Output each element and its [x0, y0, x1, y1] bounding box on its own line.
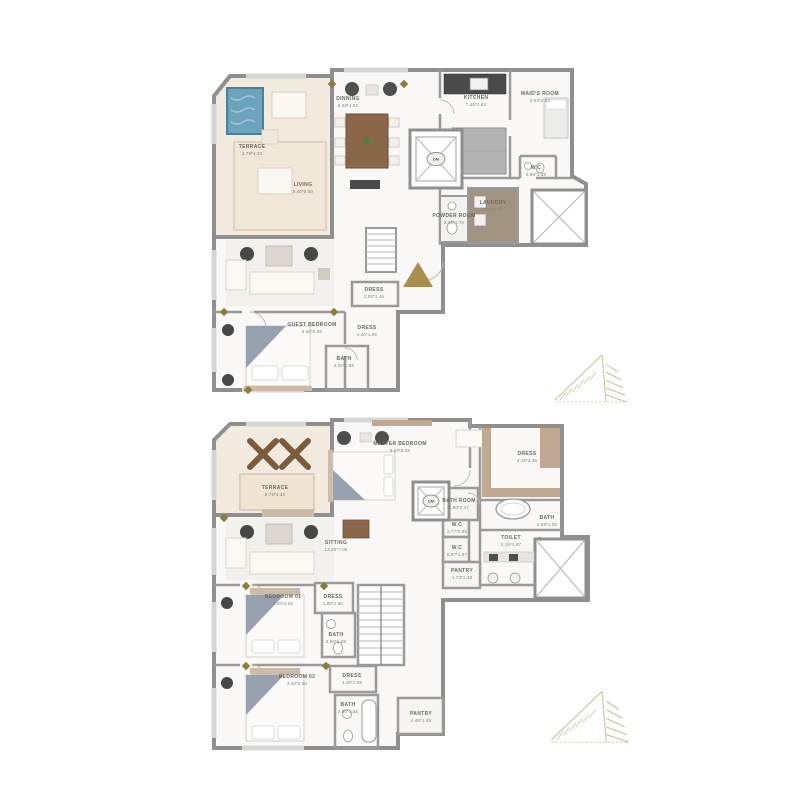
bathtub	[496, 499, 530, 519]
service-shaft	[535, 539, 586, 598]
floorplan-page: TERRACE3.79*4.33DINNING6.48*4.92KITCHEN7…	[0, 0, 800, 800]
elevator	[413, 482, 449, 520]
sitting-furniture	[226, 509, 334, 580]
stairs	[366, 228, 396, 272]
console	[350, 180, 380, 189]
stairs	[358, 585, 404, 665]
living-furniture	[226, 240, 334, 306]
developer-logo-watermark	[551, 691, 629, 742]
pool	[227, 88, 263, 134]
elevator	[410, 130, 462, 188]
dining-table	[335, 114, 399, 168]
developer-logo-watermark	[555, 355, 627, 402]
laundry-room	[468, 188, 518, 243]
powder-room	[440, 196, 468, 242]
plan-canvas	[0, 0, 800, 800]
floor-plan-lower	[214, 420, 588, 748]
service-shaft	[532, 190, 586, 244]
floor-plan-upper	[214, 70, 586, 394]
